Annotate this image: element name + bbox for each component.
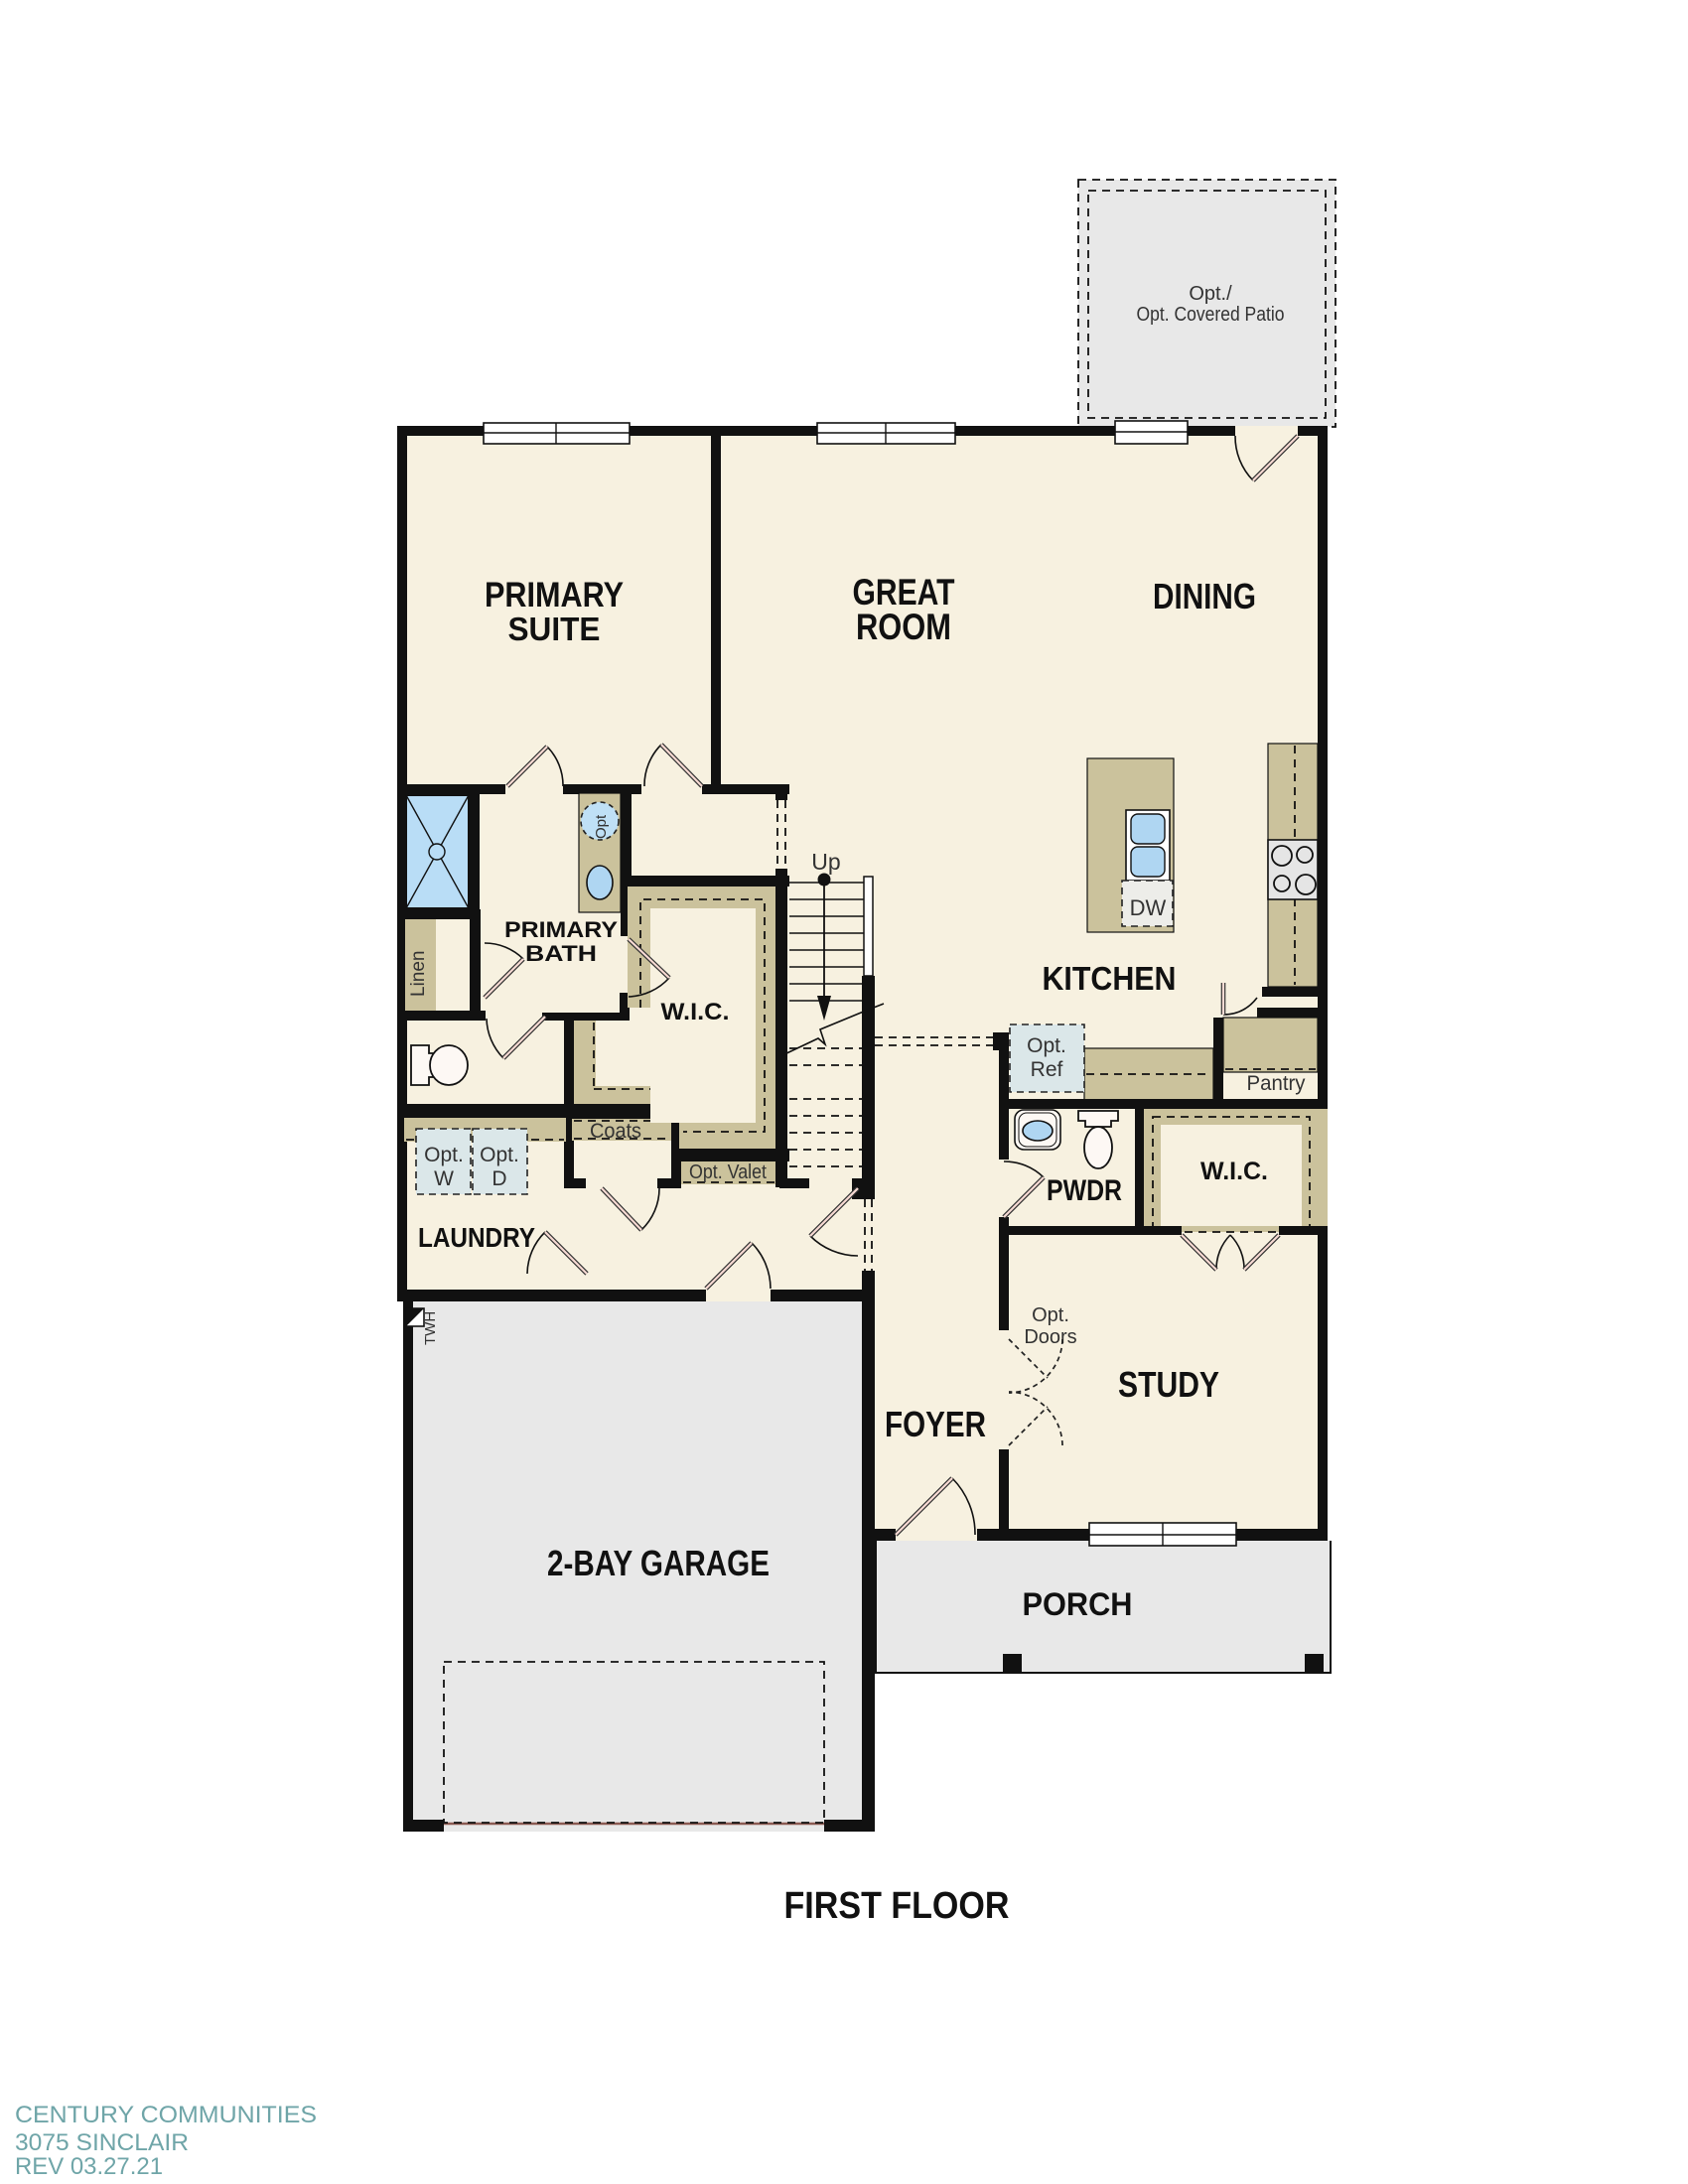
svg-text:Coats: Coats [590,1120,641,1143]
svg-text:Pantry: Pantry [1247,1072,1306,1095]
svg-text:KITCHEN: KITCHEN [1043,960,1177,997]
svg-text:CENTURY COMMUNITIES: CENTURY COMMUNITIES [15,2102,317,2128]
svg-text:REV 03.27.21: REV 03.27.21 [15,2153,163,2180]
svg-text:Ref: Ref [1031,1058,1063,1081]
svg-text:PORCH: PORCH [1023,1586,1133,1622]
svg-text:W.I.C.: W.I.C. [1200,1158,1268,1185]
svg-text:Opt.: Opt. [1032,1304,1069,1326]
svg-text:Opt. Covered Patio: Opt. Covered Patio [1137,304,1285,326]
svg-text:Opt: Opt [593,814,610,839]
svg-text:SUITE: SUITE [508,611,601,647]
svg-text:Opt.: Opt. [480,1144,519,1166]
svg-text:LAUNDRY: LAUNDRY [418,1222,535,1253]
svg-text:PRIMARY: PRIMARY [485,576,624,614]
svg-text:Opt./: Opt./ [1189,283,1232,305]
svg-text:Linen: Linen [408,951,429,998]
svg-text:D: D [492,1167,506,1190]
svg-text:Doors: Doors [1024,1326,1076,1348]
svg-text:Opt. Valet: Opt. Valet [689,1161,767,1183]
svg-text:3075 SINCLAIR: 3075 SINCLAIR [15,2129,189,2156]
svg-text:W: W [434,1167,454,1190]
svg-text:Opt.: Opt. [424,1144,464,1166]
svg-text:STUDY: STUDY [1118,1364,1219,1405]
svg-text:DINING: DINING [1153,576,1256,616]
svg-text:Up: Up [811,849,840,875]
svg-text:BATH: BATH [525,941,597,966]
svg-text:TWH: TWH [422,1311,439,1345]
svg-text:W.I.C.: W.I.C. [661,999,730,1025]
svg-text:PWDR: PWDR [1047,1174,1122,1207]
svg-text:Opt.: Opt. [1027,1034,1066,1057]
svg-text:FIRST FLOOR: FIRST FLOOR [784,1885,1010,1927]
svg-text:2-BAY GARAGE: 2-BAY GARAGE [547,1543,770,1583]
svg-text:FOYER: FOYER [885,1404,986,1444]
svg-text:PRIMARY: PRIMARY [504,917,618,942]
svg-text:ROOM: ROOM [856,607,951,647]
svg-text:DW: DW [1130,895,1167,920]
